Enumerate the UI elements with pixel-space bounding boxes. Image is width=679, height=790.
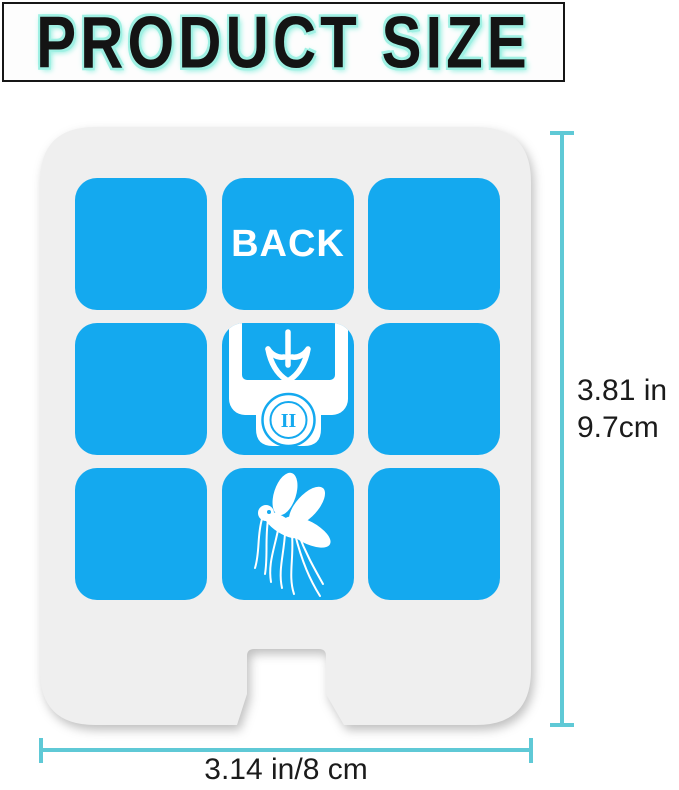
product-size-figure: PRODUCT SIZE BACK II	[0, 0, 679, 790]
height-dimension-cap-top	[550, 131, 574, 135]
width-dimension-line	[41, 748, 531, 752]
socket-prongs-label: II	[281, 410, 297, 432]
height-centimeters: 9.7cm	[577, 409, 677, 446]
tile-top-left	[75, 178, 207, 310]
tile-bottom-right	[368, 468, 500, 600]
tile-middle-right	[368, 323, 500, 455]
tile-bottom-left	[75, 468, 207, 600]
height-dimension-line	[560, 133, 564, 725]
height-dimension-cap-bottom	[550, 723, 574, 727]
insert-arrow-plug-icon: II	[222, 323, 354, 455]
height-inches: 3.81 in	[577, 372, 677, 409]
tile-middle-left	[75, 323, 207, 455]
mosquito-icon	[222, 468, 354, 600]
tile-top-center: BACK	[222, 178, 354, 310]
tile-middle-center: II	[222, 323, 354, 455]
back-label: BACK	[231, 223, 345, 266]
tile-bottom-center	[222, 468, 354, 600]
tile-top-right	[368, 178, 500, 310]
width-dimension-label: 3.14 in/8 cm	[41, 753, 531, 787]
height-dimension-label: 3.81 in 9.7cm	[577, 372, 677, 446]
